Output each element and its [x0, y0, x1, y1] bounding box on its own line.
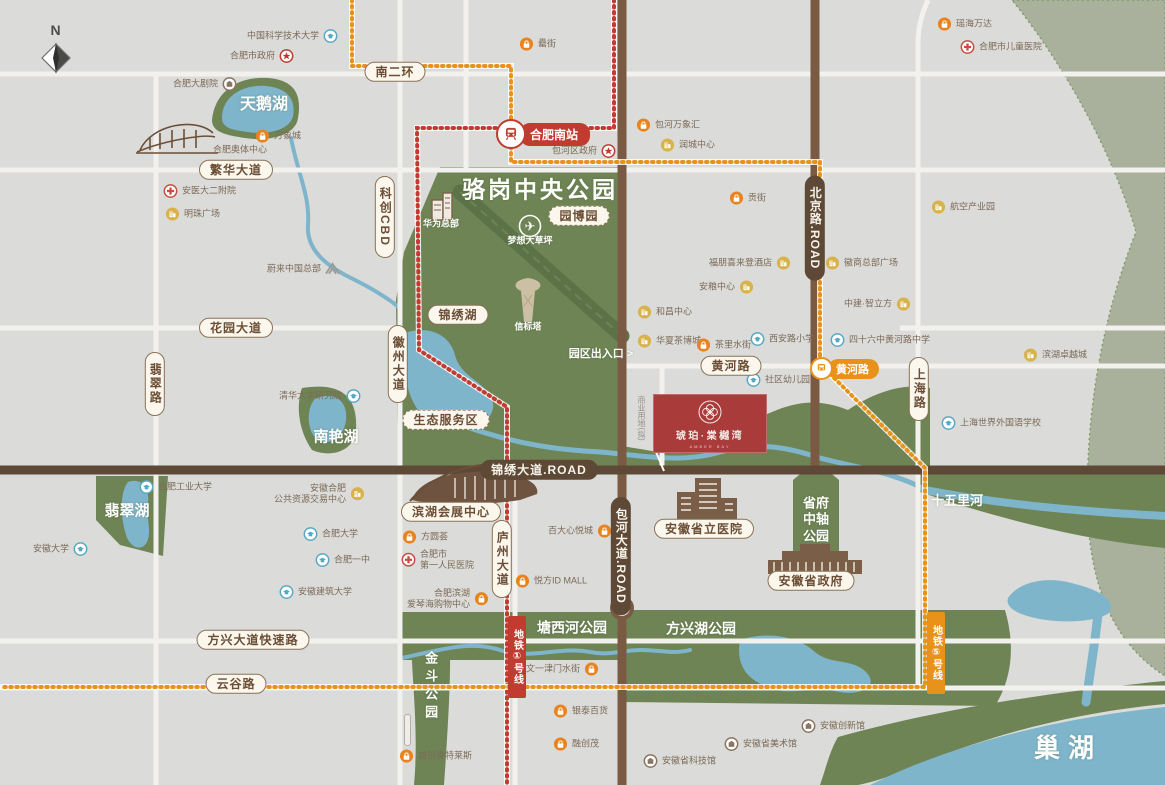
road-badge: 云谷路	[205, 674, 266, 694]
poi-label: 包河万象汇	[655, 120, 700, 131]
metro-line5-badge: 地铁⑤号线	[927, 612, 945, 694]
poi-culture: 安徽省美术馆	[724, 737, 797, 752]
project-flag: 琥珀·棠樾湾 AMBER BAY	[653, 394, 767, 453]
area-label: 华为总部	[423, 218, 459, 229]
area-label: 天鹅湖	[240, 95, 288, 115]
road-badge: 科创CBD	[375, 176, 395, 258]
hospital-icon	[163, 184, 178, 199]
huanghe-road-station-badge: 黄河路	[810, 357, 879, 380]
poi-mall: 瑶海万达	[937, 17, 992, 32]
poi-label: 合肥大剧院	[173, 79, 218, 90]
poi-edu: 合肥一中	[315, 553, 370, 568]
poi-label: 福朋喜来登酒店	[709, 258, 772, 269]
poi-label: 上海世界外国语学校	[960, 418, 1041, 429]
hefei-south-station-badge: 合肥南站	[496, 119, 590, 149]
edu-icon	[73, 542, 88, 557]
biz-icon	[1023, 348, 1038, 363]
poi-mall: 贡街	[729, 191, 766, 206]
poi-edu: 合肥工业大学	[139, 480, 212, 495]
compass: N	[36, 22, 76, 95]
gov-icon	[601, 144, 616, 159]
area-label: 塘西河公园	[537, 619, 607, 637]
culture-icon	[801, 719, 816, 734]
mall-icon	[519, 37, 534, 52]
area-label: 合肥奥体中心	[213, 144, 267, 155]
poi-label: 安徽省美术馆	[743, 739, 797, 750]
poi-label: 银泰百货	[572, 706, 608, 717]
poi-culture: 安徽省科技馆	[643, 754, 716, 769]
edu-icon	[830, 333, 845, 348]
poi-mall: 首创奥特莱斯	[399, 749, 472, 764]
poi-label: 合肥工业大学	[158, 482, 212, 493]
poi-label: 文一津门水街	[526, 664, 580, 675]
compass-rose-icon	[36, 38, 76, 90]
road-badge: 繁华大道	[199, 160, 273, 180]
poi-label: 华夏茶博城	[656, 336, 701, 347]
hefei-south-station-label: 合肥南站	[520, 123, 590, 146]
road-badge: 黄河路	[700, 356, 761, 376]
culture-icon	[724, 737, 739, 752]
poi-edu: 合肥大学	[303, 527, 358, 542]
poi-gov: 合肥市政府	[230, 49, 294, 64]
road-badge: 包河大道.ROAD	[611, 497, 631, 615]
edu-icon	[346, 389, 361, 404]
edu-icon	[315, 553, 330, 568]
poi-label: 首创奥特莱斯	[418, 751, 472, 762]
train-station-icon	[496, 119, 526, 149]
mall-icon	[402, 530, 417, 545]
mall-icon	[937, 17, 952, 32]
poi-hospital: 合肥市 第一人民医院	[401, 549, 474, 571]
poi-biz: 华夏茶博城	[637, 334, 701, 349]
area-label: 翡翠湖	[104, 503, 149, 522]
poi-label: 合肥一中	[334, 555, 370, 566]
road-badge: 上海路	[909, 357, 929, 421]
poi-edu: 西安路小学	[750, 332, 814, 347]
mall-icon	[584, 662, 599, 677]
poi-label: 罍街	[538, 39, 556, 50]
poi-edu: 中国科学技术大学	[247, 29, 338, 44]
huanghe-station-label: 黄河路	[828, 359, 879, 379]
poi-label: 四十六中黄河路中学	[849, 335, 930, 346]
road-badge: 安徽省立医院	[654, 519, 754, 539]
area-label: 梦想大草坪	[507, 235, 552, 246]
poi-mall: 百大心悦城	[548, 524, 612, 539]
edu-icon	[279, 585, 294, 600]
biz-icon	[637, 305, 652, 320]
road-badge: 庐州大道	[492, 520, 512, 598]
poi-biz: 中建·智立方	[844, 297, 911, 312]
poi-biz: 滨湖卓越城	[1023, 348, 1087, 363]
road-badge: 翡翠路	[145, 352, 165, 416]
poi-hospital: 合肥市儿童医院	[960, 40, 1042, 55]
poi-edu: 安徽建筑大学	[279, 585, 352, 600]
poi-label: 安徽创新馆	[820, 721, 865, 732]
mall-icon	[696, 338, 711, 353]
poi-label: 方圆荟	[421, 532, 448, 543]
mall-icon	[553, 737, 568, 752]
poi-mall: 茶里水街	[696, 338, 751, 353]
area-label: 方兴湖公园	[666, 620, 736, 638]
poi-label: 安医大二附院	[182, 186, 236, 197]
poi-label: 合肥市政府	[230, 51, 275, 62]
biz-icon	[660, 138, 675, 153]
gov-icon	[279, 49, 294, 64]
poi-label: 和昌中心	[656, 307, 692, 318]
road-badge: 北京路.ROAD	[805, 176, 825, 281]
poi-label: 安徽省科技馆	[662, 756, 716, 767]
metro-station-icon	[810, 357, 833, 380]
project-name: 琥珀·棠樾湾	[676, 427, 744, 442]
area-label: 骆岗中央公园	[462, 176, 618, 205]
poi-label: 万象城	[274, 131, 301, 142]
biz-icon	[350, 487, 365, 502]
road-badge: 方兴大道快速路	[196, 630, 309, 650]
poi-culture: 合肥大剧院	[173, 77, 237, 92]
poi-biz: 航空产业园	[931, 200, 995, 215]
area-label: 南艳湖	[313, 429, 358, 448]
poi-mall: 罍街	[519, 37, 556, 52]
mall-icon	[399, 749, 414, 764]
poi-mall: 文一津门水街	[526, 662, 599, 677]
poi-label: 安粮中心	[699, 282, 735, 293]
road-badge: 安徽省政府	[767, 571, 854, 591]
biz-icon	[931, 200, 946, 215]
area-label: 金斗公园	[422, 651, 438, 723]
poi-label: 航空产业园	[950, 202, 995, 213]
poi-mall: 方圆荟	[402, 530, 448, 545]
poi-label: 百大心悦城	[548, 526, 593, 537]
poi-biz: 润城中心	[660, 138, 715, 153]
mall-icon	[515, 574, 530, 589]
road-badge: 生态服务区	[402, 410, 489, 430]
biz-icon	[825, 256, 840, 271]
poi-biz: 安粮中心	[699, 280, 754, 295]
poi-biz: 福朋喜来登酒店	[709, 256, 791, 271]
legend-bar	[404, 714, 411, 746]
mall-icon	[474, 592, 489, 607]
road-badge: 园博园	[548, 206, 609, 226]
nio-icon	[325, 262, 340, 277]
hospital-icon	[401, 553, 416, 568]
poi-edu: 四十六中黄河路中学	[830, 333, 930, 348]
edu-icon	[303, 527, 318, 542]
poi-label: 徽商总部广场	[844, 258, 898, 269]
metro-line1-badge: 地铁①号线	[508, 616, 526, 698]
poi-label: 滨湖卓越城	[1042, 350, 1087, 361]
poi-label: 合肥滨湖 爱琴海购物中心	[407, 588, 470, 610]
poi-edu: 清华大学研究院	[279, 389, 361, 404]
biz-icon	[776, 256, 791, 271]
poi-label: 西安路小学	[769, 334, 814, 345]
mall-icon	[553, 704, 568, 719]
culture-icon	[643, 754, 658, 769]
road-badge: 锦绣湖	[427, 305, 488, 325]
area-label: 省府中轴公园	[799, 496, 833, 545]
area-label: 园区出入口 >	[569, 348, 633, 362]
poi-label: 合肥市儿童医院	[979, 42, 1042, 53]
road-badge: 南二环	[364, 62, 425, 82]
poi-label: 中建·智立方	[844, 299, 892, 310]
poi-label: 社区幼儿园	[765, 375, 810, 386]
poi-culture: 安徽创新馆	[801, 719, 865, 734]
poi-mall: 银泰百货	[553, 704, 608, 719]
edu-icon	[323, 29, 338, 44]
mall-icon	[255, 129, 270, 144]
poi-mall: 悦方ID MALL	[515, 574, 587, 589]
road-badge: 花园大道	[199, 318, 273, 338]
poi-label: 合肥市 第一人民医院	[420, 549, 474, 571]
road-badge: 滨湖会展中心	[401, 502, 501, 522]
poi-label: 瑶海万达	[956, 19, 992, 30]
mall-icon	[729, 191, 744, 206]
biz-icon	[739, 280, 754, 295]
poi-label: 安徽大学	[33, 544, 69, 555]
map-canvas: ✈ N 合肥南站	[0, 0, 1165, 785]
poi-label: 悦方ID MALL	[534, 576, 587, 587]
poi-label: 贡街	[748, 193, 766, 204]
mall-icon	[597, 524, 612, 539]
road-badge: 徽州大道	[388, 325, 408, 403]
poi-label: 蔚来中国总部	[267, 264, 321, 275]
poi-edu: 上海世界外国语学校	[941, 416, 1041, 431]
poi-edu: 安徽大学	[33, 542, 88, 557]
mall-icon	[636, 118, 651, 133]
poi-biz: 徽商总部广场	[825, 256, 898, 271]
poi-label: 合肥大学	[322, 529, 358, 540]
project-logo-icon	[697, 399, 723, 425]
poi-mall: 融创茂	[553, 737, 599, 752]
road-badge: 锦绣大道.ROAD	[480, 460, 598, 480]
poi-label: 润城中心	[679, 140, 715, 151]
project-tagline: AMBER BAY	[689, 444, 730, 449]
biz-icon	[896, 297, 911, 312]
edu-icon	[941, 416, 956, 431]
poi-biz: 明珠广场	[165, 207, 220, 222]
area-label: 巢湖	[1034, 732, 1102, 765]
poi-mall: 包河万象汇	[636, 118, 700, 133]
edu-icon	[750, 332, 765, 347]
poi-hospital: 安医大二附院	[163, 184, 236, 199]
area-label: 十五里河	[931, 493, 983, 509]
poi-biz: 和昌中心	[637, 305, 692, 320]
culture-icon	[222, 77, 237, 92]
svg-text:✈: ✈	[525, 219, 536, 234]
poi-label: 清华大学研究院	[279, 391, 342, 402]
edu-icon	[139, 480, 154, 495]
poi-biz: 安徽合肥 公共资源交易中心	[274, 483, 365, 505]
hospital-icon	[960, 40, 975, 55]
poi-label: 融创茂	[572, 739, 599, 750]
poi-label: 茶里水街	[715, 340, 751, 351]
biz-icon	[165, 207, 180, 222]
area-label: 商业用地(拟)	[636, 395, 646, 440]
poi-label: 明珠广场	[184, 209, 220, 220]
poi-mall: 合肥滨湖 爱琴海购物中心	[407, 588, 489, 610]
biz-icon	[637, 334, 652, 349]
poi-label: 中国科学技术大学	[247, 31, 319, 42]
poi-mall: 万象城	[255, 129, 301, 144]
poi-nio: 蔚来中国总部	[267, 262, 340, 277]
area-label: 信标塔	[514, 321, 541, 332]
compass-n-label: N	[36, 22, 76, 38]
poi-label: 安徽建筑大学	[298, 587, 352, 598]
poi-label: 安徽合肥 公共资源交易中心	[274, 483, 346, 505]
